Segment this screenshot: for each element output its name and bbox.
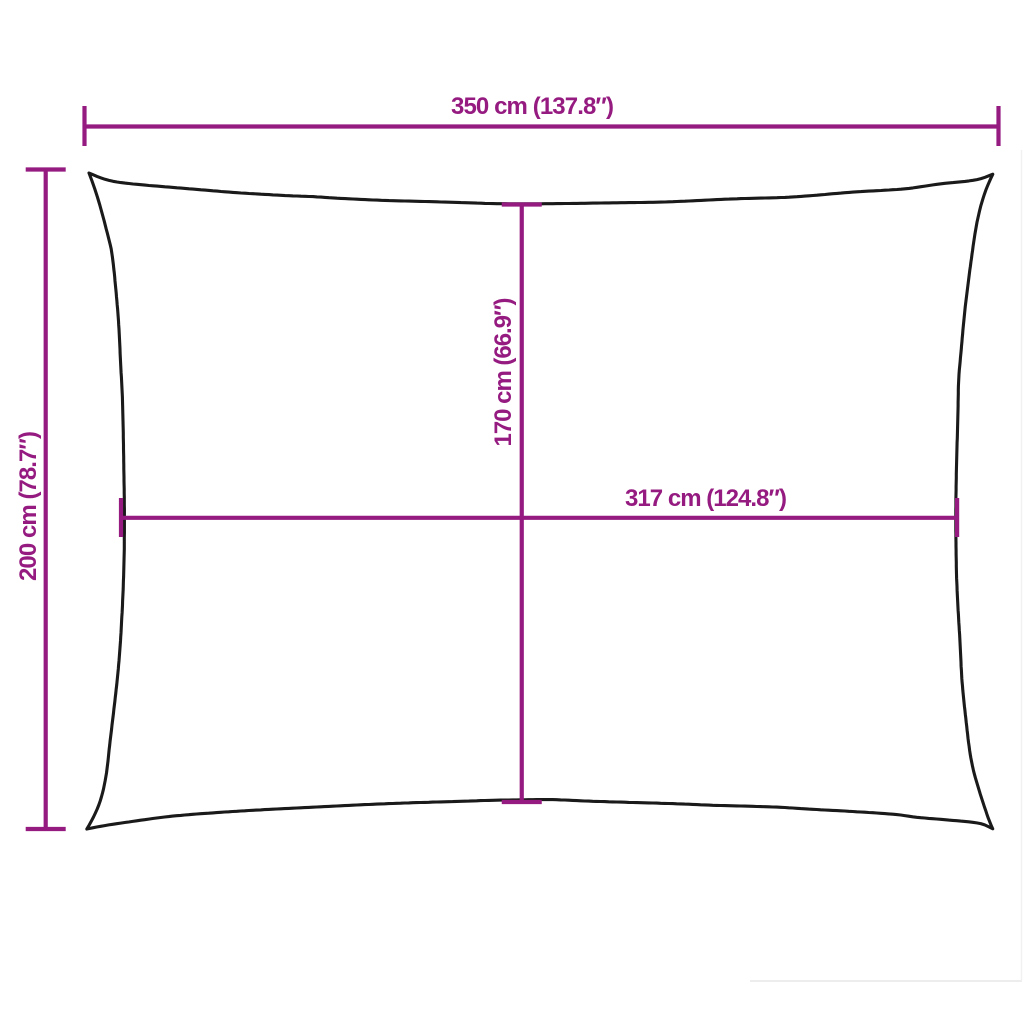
svg-text:170 cm (66.9″): 170 cm (66.9″) [490, 298, 517, 447]
svg-text:317 cm (124.8″): 317 cm (124.8″) [625, 485, 787, 512]
svg-text:200 cm (78.7″): 200 cm (78.7″) [15, 431, 42, 581]
svg-text:350 cm (137.8″): 350 cm (137.8″) [451, 93, 614, 120]
